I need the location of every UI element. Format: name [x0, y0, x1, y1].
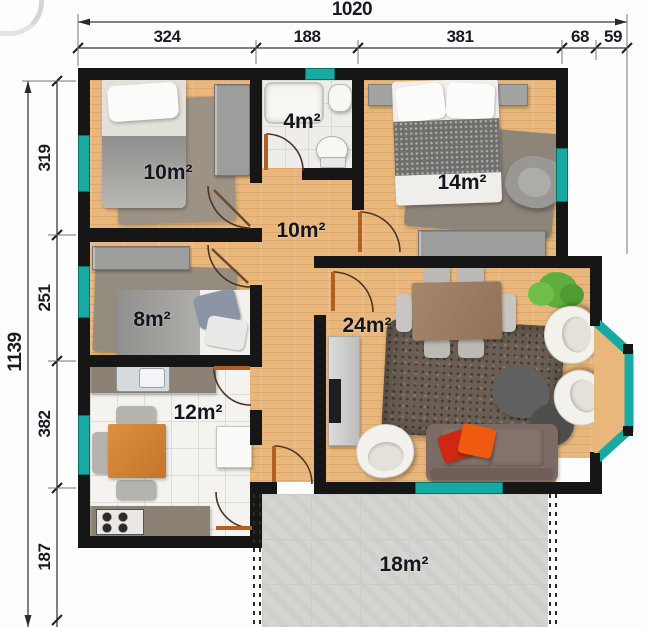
wall-living-left	[314, 315, 326, 482]
tv-stand	[328, 336, 360, 446]
window-right-bedroom2	[556, 148, 568, 202]
sink-icon	[116, 364, 170, 392]
room-label-bedroom3: 8m²	[133, 308, 170, 332]
armchair-seat	[565, 374, 605, 417]
window-left-kitchen	[78, 415, 90, 475]
window-left-bedroom3	[78, 266, 90, 318]
room-label-kitchen: 12m²	[173, 401, 222, 425]
wall-bedroom3-right	[250, 285, 262, 355]
window-left-bedroom1	[78, 135, 90, 192]
wall-kitchen-bottom	[78, 536, 262, 548]
sink-bowl	[139, 368, 165, 388]
room-label-living: 24m²	[342, 314, 391, 338]
plant-leaf	[528, 282, 554, 306]
dim-top-seg1: 324	[154, 27, 181, 47]
floor-plan-canvas: 1020 324 188 381 68 59 1139 319 251 382 …	[0, 0, 647, 627]
wall-bedrooms-divider	[78, 228, 262, 242]
wall-kitchen-right-upper	[250, 410, 262, 445]
nightstand-right	[498, 84, 528, 106]
dim-top-seg4: 68	[571, 27, 589, 47]
dining-chair-side	[396, 294, 412, 332]
bedroom3-wardrobe	[92, 246, 190, 270]
plant-icon	[538, 272, 578, 308]
bed-pillow	[204, 315, 249, 351]
bed-pillow	[107, 82, 179, 123]
wall-bedroom3-bottom	[78, 355, 262, 367]
bay-joint	[623, 426, 633, 436]
plant-leaf	[560, 284, 584, 306]
page-corner-curve	[0, 0, 44, 36]
kitchen-chair-bottom	[116, 480, 156, 500]
window-top-bathroom	[305, 68, 335, 80]
toilet-icon	[316, 136, 348, 164]
wall-bathroom-right	[352, 80, 364, 210]
room-label-hall: 10m²	[276, 219, 325, 243]
dining-chair	[458, 338, 484, 358]
armchair-seat	[560, 315, 592, 353]
fridge	[216, 426, 252, 468]
dim-left-seg1: 319	[35, 145, 55, 172]
bed-pillow	[394, 82, 447, 124]
bed-blanket	[393, 118, 501, 176]
bed-pillow	[446, 82, 496, 120]
wall-bathroom-left	[250, 80, 262, 183]
dim-left-total: 1139	[5, 332, 27, 371]
room-label-bathroom: 4m²	[283, 110, 320, 134]
single-bed	[102, 78, 186, 208]
dim-top-seg5: 59	[604, 27, 622, 47]
armchair-seat	[366, 439, 406, 473]
dining-table	[412, 281, 503, 341]
wall-bathroom-bottom	[302, 168, 364, 180]
dim-left-seg2: 251	[35, 285, 55, 312]
dining-chair	[424, 338, 450, 358]
bay-joint	[623, 344, 633, 354]
dim-top-total: 1020	[332, 0, 372, 21]
sofa	[426, 424, 558, 482]
room-label-bedroom2: 14m²	[437, 171, 486, 195]
stove-icon	[96, 509, 144, 535]
sink-icon	[328, 84, 352, 112]
dining-chair-side	[500, 294, 516, 332]
kitchen-chair-top	[116, 406, 156, 426]
wall-bay-lower	[590, 452, 602, 494]
armchair-seat	[514, 164, 555, 201]
sofa-cushion	[494, 429, 544, 467]
dim-top-seg2: 188	[294, 27, 321, 47]
room-label-patio: 18m²	[379, 553, 428, 577]
dim-top-seg3: 381	[447, 27, 474, 47]
bedroom2-wardrobe	[418, 230, 546, 258]
wall-kitchen-right-lower	[250, 483, 262, 548]
room-label-bedroom1: 10m²	[143, 161, 192, 185]
bay-window-angled-top	[597, 323, 629, 352]
kitchen-counter-stove	[90, 506, 210, 536]
toilet-tank	[320, 157, 346, 168]
bedroom1-wardrobe	[214, 84, 250, 176]
window-bottom-living	[415, 482, 503, 494]
kitchen-table	[108, 424, 166, 478]
tv-icon	[329, 379, 341, 423]
dim-left-seg3: 382	[35, 411, 55, 438]
sofa-back	[430, 468, 554, 480]
wall-living-top	[314, 256, 602, 268]
dim-left-seg4: 187	[35, 544, 55, 571]
